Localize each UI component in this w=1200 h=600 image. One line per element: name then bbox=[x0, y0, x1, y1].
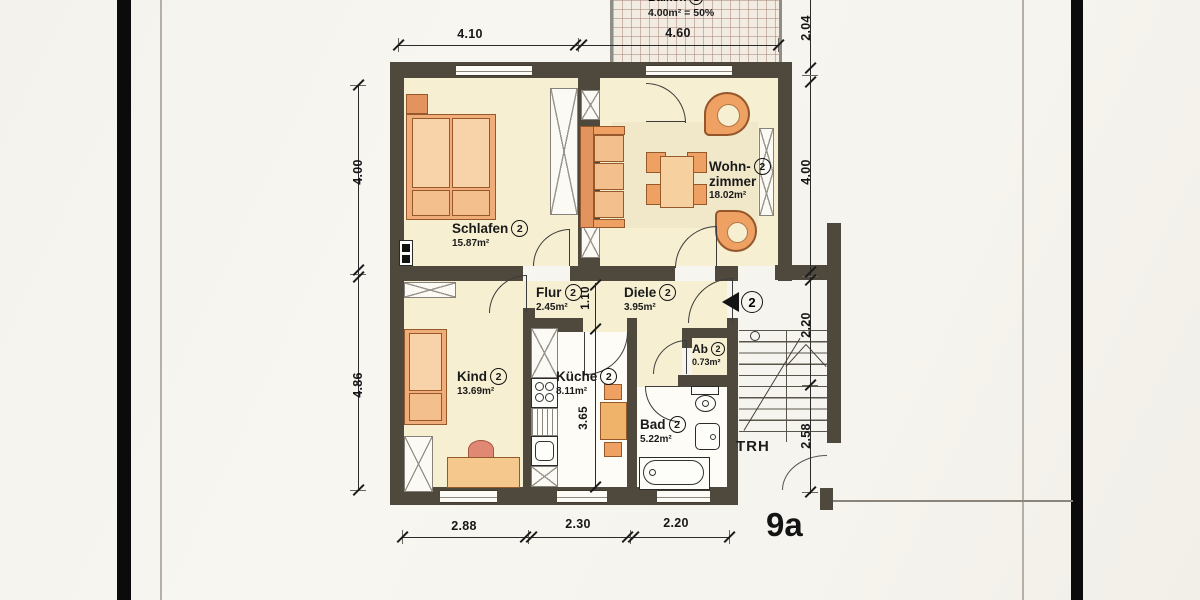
dining-table bbox=[660, 156, 694, 208]
balcony-label-clipped: Balkon 2 bbox=[648, 0, 763, 7]
mattress-right bbox=[452, 118, 490, 188]
bathtub-drain bbox=[649, 469, 656, 476]
room-area: 0.73m² bbox=[692, 357, 725, 367]
entry-unit-badge: 2 bbox=[741, 291, 763, 313]
sofa-cushion bbox=[594, 191, 624, 218]
label-schlafen: Schlafen2 15.87m² bbox=[452, 220, 528, 249]
room-name: Kind bbox=[457, 369, 487, 384]
kitchen-appliance bbox=[531, 408, 558, 436]
bathtub bbox=[639, 457, 710, 490]
balcony-area-note: 4.00m² = 50% bbox=[648, 7, 768, 19]
wall-stairwell-right bbox=[827, 223, 841, 443]
room-area: 3.95m² bbox=[624, 302, 676, 313]
window-schlafen bbox=[456, 65, 532, 76]
nightstand bbox=[406, 94, 428, 114]
sink-basin bbox=[535, 441, 554, 461]
room-name: Ab bbox=[692, 342, 708, 356]
armchair bbox=[715, 210, 757, 252]
kids-bed-pillow bbox=[409, 393, 442, 421]
page-fold-line-right bbox=[1022, 0, 1024, 600]
bathroom-sink bbox=[695, 423, 720, 450]
toilet-bowl bbox=[695, 395, 716, 412]
kitchen-counter-bottom bbox=[531, 466, 558, 487]
kitchen-table bbox=[600, 402, 627, 440]
label-kueche: Küche2 8.11m² bbox=[556, 368, 617, 397]
dim-left-2: 4.86 bbox=[351, 355, 365, 415]
sofa-cushion bbox=[594, 163, 624, 190]
window-bad bbox=[657, 490, 710, 503]
dim-line-top bbox=[398, 45, 778, 46]
house-number: 9a bbox=[766, 506, 803, 544]
window-kind bbox=[440, 490, 497, 503]
wall-kueche-right bbox=[627, 318, 637, 488]
label-ab: Ab2 0.73m² bbox=[692, 342, 725, 367]
dim-top-2: 4.60 bbox=[648, 26, 708, 40]
entry-unit-number: 2 bbox=[741, 291, 763, 313]
dim-right-2: 4.00 bbox=[799, 142, 813, 202]
toilet-tank bbox=[691, 386, 719, 395]
door-leaf-ab bbox=[686, 340, 687, 374]
unit-badge: 2 bbox=[669, 416, 686, 433]
door-leaf-kind bbox=[526, 275, 527, 313]
room-name: Schlafen bbox=[452, 221, 508, 236]
label-wohnzimmer: Wohn-2 zimmer 18.02m² bbox=[709, 158, 771, 201]
unit-badge: 2 bbox=[511, 220, 528, 237]
burner bbox=[535, 382, 544, 391]
unit-badge: 2 bbox=[565, 284, 582, 301]
wardrobe-schlafen bbox=[550, 88, 578, 215]
label-diele: Diele2 3.95m² bbox=[624, 284, 676, 313]
balcony-unit-badge: 2 bbox=[689, 0, 703, 5]
facade-line bbox=[833, 500, 1073, 502]
stairs bbox=[739, 330, 827, 442]
unit-badge: 2 bbox=[490, 368, 507, 385]
dim-right-3: 2.20 bbox=[799, 295, 813, 355]
door-leaf-wohnzimmer bbox=[716, 226, 717, 268]
sofa-back bbox=[580, 126, 594, 228]
armchair bbox=[704, 92, 750, 136]
balcony-name: Balkon bbox=[648, 0, 686, 4]
unit-badge: 2 bbox=[754, 158, 771, 175]
wall-left bbox=[390, 62, 404, 505]
room-area: 8.11m² bbox=[556, 386, 617, 397]
stairs-newel bbox=[750, 331, 760, 341]
dim-bottom-1: 2.88 bbox=[434, 519, 494, 533]
room-name: zimmer bbox=[709, 174, 756, 189]
toilet-drain bbox=[702, 400, 709, 407]
room-name: Wohn- bbox=[709, 159, 751, 174]
desk bbox=[447, 457, 520, 488]
dim-line-bottom bbox=[402, 537, 729, 538]
page-edge-left bbox=[117, 0, 131, 600]
dim-inner-1: 1.10 bbox=[580, 268, 592, 328]
wall-right-upper bbox=[778, 62, 792, 281]
room-area: 5.22m² bbox=[640, 434, 686, 445]
burner bbox=[545, 382, 554, 391]
wardrobe-kind-bottom bbox=[404, 436, 433, 492]
sofa-cushion bbox=[594, 135, 624, 162]
sink-drain bbox=[710, 434, 716, 440]
kids-bed-mattress bbox=[409, 333, 442, 391]
dim-right-1: 2.04 bbox=[799, 0, 813, 58]
room-area: 15.87m² bbox=[452, 238, 528, 249]
wall-ab-top bbox=[682, 328, 727, 338]
stairs-divider bbox=[786, 330, 787, 442]
room-name: Küche bbox=[556, 369, 597, 384]
page-edge-right bbox=[1071, 0, 1083, 600]
wall-end-bottom-right bbox=[820, 488, 833, 510]
dim-right-4: 2.58 bbox=[799, 406, 813, 466]
kitchen-stool bbox=[604, 442, 622, 457]
room-name: Diele bbox=[624, 285, 656, 300]
stairwell-label: TRH bbox=[736, 438, 770, 455]
room-name: Bad bbox=[640, 417, 666, 432]
label-kind: Kind2 13.69m² bbox=[457, 368, 507, 397]
wardrobe-inset-bottom bbox=[581, 223, 600, 258]
unit-badge: 2 bbox=[600, 368, 617, 385]
door-leaf-balcony bbox=[646, 121, 686, 122]
radiator-segment bbox=[402, 255, 410, 263]
unit-badge: 2 bbox=[659, 284, 676, 301]
bed-foot-right bbox=[452, 190, 490, 216]
dim-inner-2: 3.65 bbox=[578, 388, 590, 448]
window-balcony-door bbox=[646, 65, 732, 76]
page-fold-line-left bbox=[160, 0, 162, 600]
door-leaf-schlafen bbox=[569, 229, 570, 266]
wardrobe-kind-top bbox=[404, 282, 456, 298]
kitchen-counter-top bbox=[531, 328, 558, 378]
door-leaf-bad bbox=[645, 386, 680, 387]
mattress-left bbox=[412, 118, 450, 188]
wall-middle-left bbox=[390, 266, 523, 281]
window-kueche bbox=[557, 490, 607, 503]
radiator-schlafen bbox=[399, 240, 413, 266]
entry-arrow-icon bbox=[722, 292, 739, 312]
room-area: 13.69m² bbox=[457, 386, 507, 397]
room-area: 2.45m² bbox=[536, 302, 582, 313]
label-flur: Flur2 2.45m² bbox=[536, 284, 582, 313]
wardrobe-inset-top bbox=[581, 90, 600, 120]
armchair-seat bbox=[717, 104, 740, 127]
floor-plan-scan: Balkon 2 4.00m² = 50% bbox=[0, 0, 1200, 600]
room-name: Flur bbox=[536, 285, 562, 300]
dim-bottom-2: 2.30 bbox=[548, 517, 608, 531]
dim-left-1: 4.00 bbox=[351, 142, 365, 202]
dim-bottom-3: 2.20 bbox=[646, 516, 706, 530]
armchair-seat bbox=[727, 222, 748, 243]
bed-foot-left bbox=[412, 190, 450, 216]
kitchen-sink bbox=[531, 436, 558, 466]
unit-badge: 2 bbox=[711, 342, 725, 356]
label-bad: Bad2 5.22m² bbox=[640, 416, 686, 445]
wall-right-lower bbox=[727, 318, 738, 487]
stove bbox=[531, 378, 558, 408]
dim-top-1: 4.10 bbox=[440, 27, 500, 41]
burner bbox=[545, 393, 554, 402]
room-area: 18.02m² bbox=[709, 190, 771, 201]
radiator-segment bbox=[402, 244, 410, 252]
burner bbox=[535, 393, 544, 402]
